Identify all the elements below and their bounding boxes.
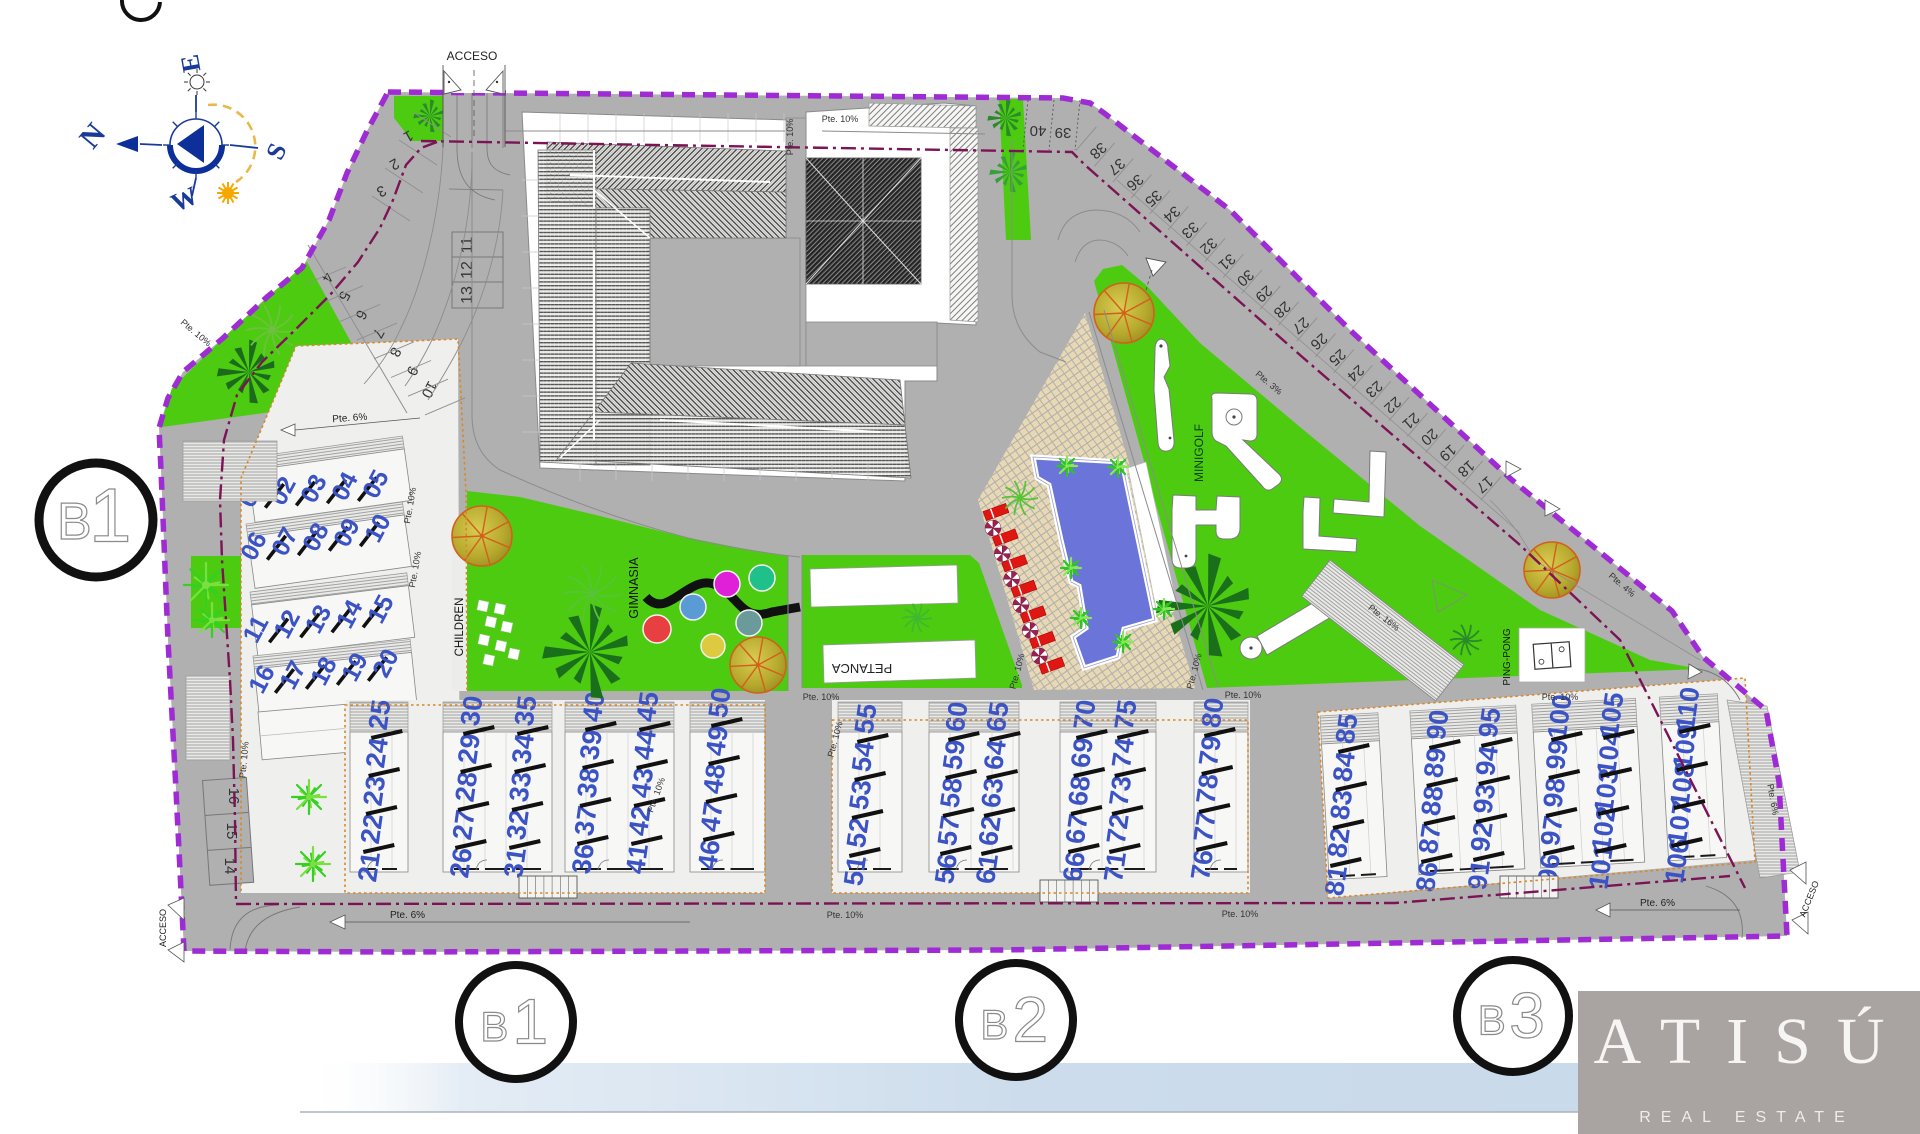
svg-text:68: 68 xyxy=(1062,774,1096,808)
svg-text:24: 24 xyxy=(360,736,394,770)
svg-text:94: 94 xyxy=(1470,744,1504,778)
svg-text:66: 66 xyxy=(1057,850,1091,884)
svg-text:REAL ESTATE: REAL ESTATE xyxy=(1639,1109,1855,1126)
svg-text:53: 53 xyxy=(843,778,877,812)
svg-text:47: 47 xyxy=(695,800,729,834)
svg-text:Pte. 6%: Pte. 6% xyxy=(390,910,425,921)
svg-text:56: 56 xyxy=(929,852,963,886)
svg-text:49: 49 xyxy=(700,724,734,758)
svg-text:15: 15 xyxy=(223,823,240,840)
svg-text:54: 54 xyxy=(846,740,880,774)
svg-text:21: 21 xyxy=(352,850,386,884)
svg-text:1: 1 xyxy=(512,986,548,1058)
svg-text:36: 36 xyxy=(566,842,600,876)
svg-text:Pte. 10%: Pte. 10% xyxy=(803,692,840,702)
svg-text:77: 77 xyxy=(1188,810,1222,844)
svg-text:82: 82 xyxy=(1322,826,1356,860)
svg-text:39: 39 xyxy=(1055,124,1072,141)
svg-text:63: 63 xyxy=(975,776,1009,810)
svg-text:99: 99 xyxy=(1540,738,1574,772)
svg-text:97: 97 xyxy=(1535,814,1569,848)
svg-text:Pte. 10%: Pte. 10% xyxy=(1542,692,1579,702)
svg-text:22: 22 xyxy=(355,812,389,846)
svg-text:B: B xyxy=(1478,996,1506,1043)
svg-text:Pte. 10%: Pte. 10% xyxy=(827,910,864,920)
svg-text:90: 90 xyxy=(1421,708,1455,742)
svg-text:Pte. 10%: Pte. 10% xyxy=(822,114,859,124)
svg-text:ACCESO: ACCESO xyxy=(447,49,498,63)
svg-text:B: B xyxy=(57,493,92,551)
svg-text:75: 75 xyxy=(1109,698,1143,732)
svg-text:57: 57 xyxy=(932,814,966,848)
svg-text:69: 69 xyxy=(1065,736,1099,770)
svg-text:89: 89 xyxy=(1418,746,1452,780)
svg-text:73: 73 xyxy=(1103,774,1137,808)
svg-text:30: 30 xyxy=(455,694,489,728)
svg-text:39: 39 xyxy=(574,728,608,762)
svg-text:1: 1 xyxy=(89,474,131,559)
svg-text:32: 32 xyxy=(501,808,535,842)
svg-text:95: 95 xyxy=(1473,706,1507,740)
svg-text:62: 62 xyxy=(973,814,1007,848)
svg-text:41: 41 xyxy=(620,842,654,876)
svg-text:B: B xyxy=(480,1003,508,1050)
svg-text:71: 71 xyxy=(1098,850,1132,884)
svg-text:Pte. 10%: Pte. 10% xyxy=(1222,909,1259,919)
svg-text:Pte. 6%: Pte. 6% xyxy=(1640,898,1675,909)
svg-text:93: 93 xyxy=(1467,782,1501,816)
svg-text:85: 85 xyxy=(1330,712,1364,746)
svg-text:58: 58 xyxy=(934,776,968,810)
svg-text:29: 29 xyxy=(452,732,486,766)
svg-text:31: 31 xyxy=(498,846,532,880)
svg-text:67: 67 xyxy=(1060,812,1094,846)
svg-text:51: 51 xyxy=(838,854,872,888)
svg-text:48: 48 xyxy=(697,762,731,796)
svg-text:27: 27 xyxy=(447,808,481,842)
svg-text:92: 92 xyxy=(1465,820,1499,854)
svg-text:44: 44 xyxy=(628,728,662,762)
svg-text:35: 35 xyxy=(509,694,543,728)
svg-text:55: 55 xyxy=(849,702,883,736)
svg-text:60: 60 xyxy=(940,700,974,734)
svg-text:3: 3 xyxy=(1509,979,1545,1051)
svg-text:91: 91 xyxy=(1462,858,1496,892)
svg-text:76: 76 xyxy=(1185,848,1219,882)
svg-text:PETANCA: PETANCA xyxy=(831,661,892,676)
svg-text:79: 79 xyxy=(1193,734,1227,768)
svg-text:65: 65 xyxy=(981,700,1015,734)
svg-text:45: 45 xyxy=(631,690,665,724)
svg-text:2: 2 xyxy=(1012,984,1048,1056)
svg-text:28: 28 xyxy=(449,770,483,804)
svg-text:GIMNASIA: GIMNASIA xyxy=(627,557,641,619)
svg-text:26: 26 xyxy=(444,846,478,880)
svg-text:Pte. 10%: Pte. 10% xyxy=(785,119,795,156)
svg-text:70: 70 xyxy=(1068,698,1102,732)
svg-text:PING-PONG: PING-PONG xyxy=(1502,628,1513,685)
svg-text:72: 72 xyxy=(1101,812,1135,846)
svg-text:ACCESO: ACCESO xyxy=(158,909,168,947)
svg-text:88: 88 xyxy=(1415,784,1449,818)
svg-text:81: 81 xyxy=(1319,864,1353,898)
svg-text:37: 37 xyxy=(569,804,603,838)
svg-text:87: 87 xyxy=(1413,822,1447,856)
svg-text:38: 38 xyxy=(571,766,605,800)
svg-text:33: 33 xyxy=(503,770,537,804)
svg-text:40: 40 xyxy=(1030,122,1047,139)
svg-text:12: 12 xyxy=(459,261,476,279)
svg-text:84: 84 xyxy=(1327,750,1361,784)
svg-text:74: 74 xyxy=(1106,736,1140,770)
svg-text:52: 52 xyxy=(841,816,875,850)
svg-text:78: 78 xyxy=(1190,772,1224,806)
svg-text:23: 23 xyxy=(357,774,391,808)
svg-text:83: 83 xyxy=(1324,788,1358,822)
svg-text:34: 34 xyxy=(506,732,540,766)
svg-text:46: 46 xyxy=(692,838,726,872)
svg-text:Pte. 10%: Pte. 10% xyxy=(1225,690,1262,700)
svg-text:13: 13 xyxy=(459,286,476,304)
svg-text:64: 64 xyxy=(978,738,1012,772)
svg-text:80: 80 xyxy=(1196,696,1230,730)
svg-text:B: B xyxy=(980,1001,1008,1048)
svg-text:59: 59 xyxy=(937,738,971,772)
svg-text:50: 50 xyxy=(703,686,737,720)
svg-text:ATISÚ: ATISÚ xyxy=(1593,1005,1910,1078)
svg-text:61: 61 xyxy=(970,852,1004,886)
svg-text:MINIGOLF: MINIGOLF xyxy=(1192,424,1206,482)
svg-text:98: 98 xyxy=(1537,776,1571,810)
svg-text:25: 25 xyxy=(363,698,397,732)
svg-text:CHILDREN: CHILDREN xyxy=(454,598,466,657)
